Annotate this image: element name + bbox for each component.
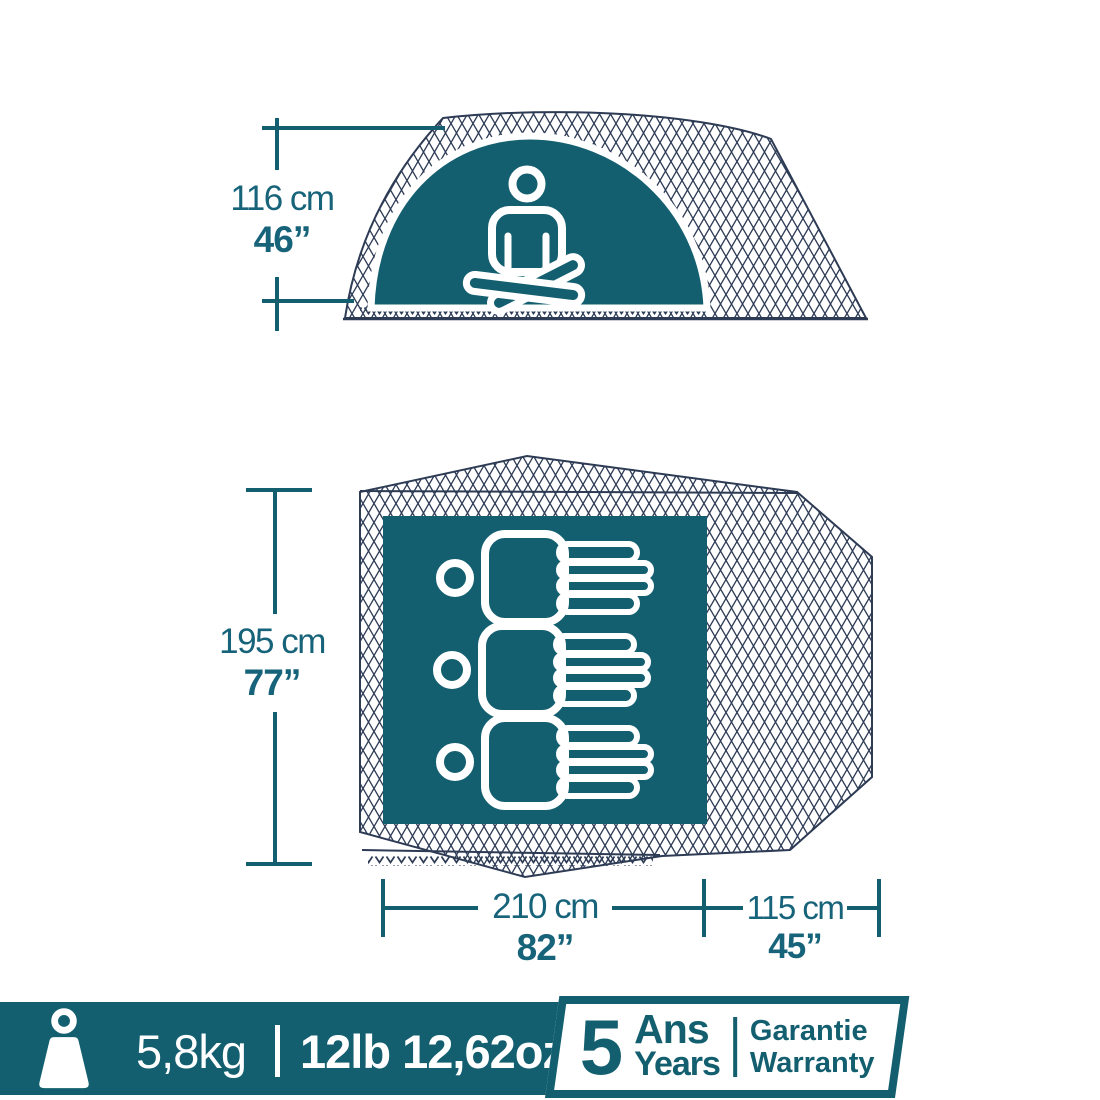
height-dim-top-tick <box>275 118 279 170</box>
height-cm-label: 116 cm <box>197 181 367 218</box>
product-dimension-sheet: 116 cm 46” 195 cm 77” 210 cm 82” 115 cm … <box>0 0 1100 1100</box>
weight-icon <box>30 1008 98 1090</box>
height-dim-bottom-line <box>262 299 354 303</box>
warranty-divider <box>733 1017 737 1077</box>
vestibule-cm-label: 115 cm <box>735 891 855 926</box>
warranty-label-fr: Garantie <box>750 1015 875 1047</box>
tent-side-view <box>343 112 868 319</box>
width-dim-line-right <box>612 906 704 910</box>
warranty-unit-fr: Ans <box>634 1013 720 1047</box>
depth-in-label: 77” <box>192 664 352 703</box>
bedroom-floor <box>383 516 707 824</box>
vestibule-in-label: 45” <box>735 929 855 966</box>
vestibule-dim-right-tick <box>877 879 881 937</box>
depth-dim-line-lower <box>273 712 277 862</box>
warranty-years-number: 5 <box>580 1012 621 1082</box>
weight-imperial: 12lb 12,62oz <box>300 1024 565 1079</box>
width-cm-label: 210 cm <box>460 889 630 926</box>
height-dim-top-line <box>262 126 445 130</box>
vestibule-dim-line-right <box>847 906 877 910</box>
warranty-label-en: Warranty <box>750 1047 875 1079</box>
weight-metric: 5,8kg <box>136 1024 246 1079</box>
width-in-label: 82” <box>460 929 630 968</box>
height-in-label: 46” <box>197 221 367 260</box>
depth-cm-label: 195 cm <box>192 624 352 661</box>
tent-floor-plan <box>360 456 872 877</box>
height-dim-bottom-tick <box>275 277 279 331</box>
depth-dim-top-tick <box>246 488 312 492</box>
footprint-stitch-strip <box>368 856 653 866</box>
warranty-unit-en: Years <box>634 1047 720 1081</box>
weight-separator <box>275 1025 280 1077</box>
warranty-badge: 5 Ans Years Garantie Warranty <box>545 996 909 1098</box>
depth-dim-bottom-tick <box>246 862 312 866</box>
warranty-content: 5 Ans Years Garantie Warranty <box>560 1004 894 1090</box>
depth-dim-line-upper <box>273 492 277 614</box>
